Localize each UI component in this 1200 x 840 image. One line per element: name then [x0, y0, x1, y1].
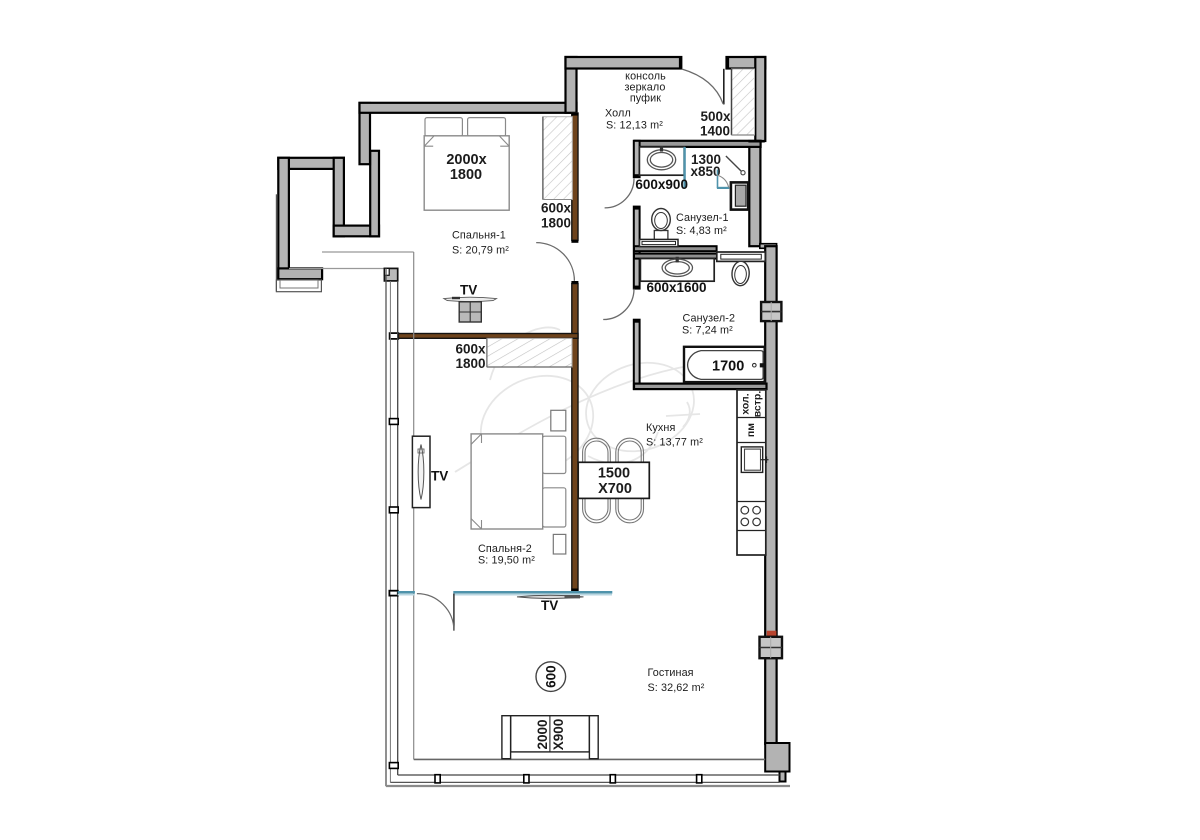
svg-text:Гостиная: Гостиная [648, 667, 694, 679]
svg-text:х850: х850 [690, 164, 720, 179]
svg-text:Кухня: Кухня [646, 422, 675, 434]
svg-text:TV: TV [460, 283, 477, 298]
svg-text:Спальня-2: Спальня-2 [478, 543, 532, 555]
svg-text:S: 12,13 m²: S: 12,13 m² [606, 120, 663, 132]
svg-text:хол.: хол. [740, 393, 752, 414]
svg-text:TV: TV [431, 469, 448, 484]
svg-text:встр.: встр. [752, 391, 764, 418]
svg-text:S: 19,50 m²: S: 19,50 m² [478, 555, 535, 567]
svg-text:1500: 1500 [598, 466, 630, 482]
svg-text:1800: 1800 [455, 356, 485, 371]
svg-text:S: 4,83 m²: S: 4,83 m² [676, 225, 727, 237]
svg-text:600x: 600x [541, 201, 572, 216]
svg-text:S: 32,62 m²: S: 32,62 m² [648, 682, 705, 694]
svg-text:Санузел-1: Санузел-1 [676, 212, 729, 224]
svg-text:600x: 600x [455, 342, 486, 357]
svg-text:1800: 1800 [541, 216, 571, 231]
svg-text:TV: TV [541, 598, 558, 613]
svg-text:1800: 1800 [450, 167, 482, 183]
svg-text:X900: X900 [551, 719, 566, 751]
svg-text:Спальня-1: Спальня-1 [452, 230, 506, 242]
svg-text:1400: 1400 [700, 124, 730, 139]
svg-text:2000: 2000 [535, 719, 550, 749]
svg-text:Санузел-2: Санузел-2 [683, 313, 736, 325]
svg-text:600: 600 [543, 665, 558, 688]
svg-text:S: 20,79 m²: S: 20,79 m² [452, 245, 509, 257]
svg-text:500x: 500x [700, 109, 731, 124]
svg-text:пуфик: пуфик [630, 93, 661, 105]
svg-text:пм: пм [745, 423, 757, 437]
svg-text:S: 7,24 m²: S: 7,24 m² [682, 325, 733, 337]
svg-text:600x1600: 600x1600 [647, 280, 707, 295]
svg-text:2000x: 2000x [446, 152, 486, 168]
svg-text:600x900: 600x900 [635, 177, 688, 192]
svg-text:Холл: Холл [605, 108, 631, 120]
svg-text:X700: X700 [598, 481, 632, 497]
svg-text:1700: 1700 [712, 359, 744, 375]
svg-text:S: 13,77 m²: S: 13,77 m² [646, 437, 703, 449]
